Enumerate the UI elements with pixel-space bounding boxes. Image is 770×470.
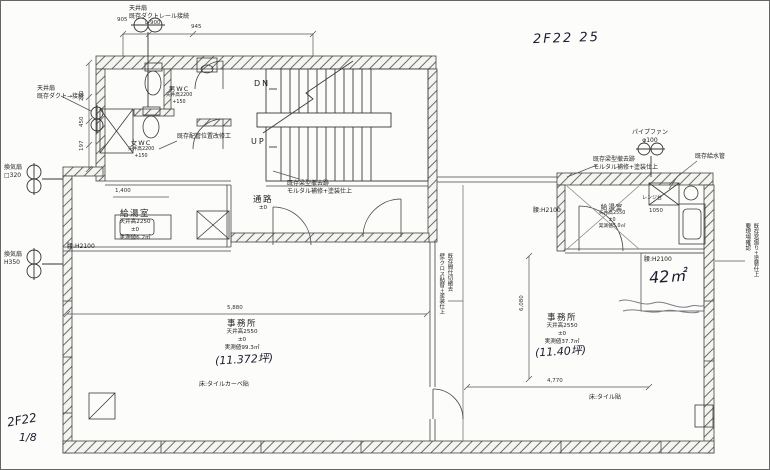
handwritten-office-right-area: (11.40坪) (535, 342, 587, 361)
room-meta: 天井高2200 +150 (151, 93, 207, 106)
handwritten-office-left-area: (11.372坪) (215, 349, 274, 368)
handwritten-sheet-code-top: 2F22 25 (533, 30, 600, 47)
room-name: 女WC (113, 137, 169, 147)
room-name: 給湯室 (583, 201, 641, 211)
annotation-right-side-note: 既存窓廻り+塗装仕上 要現場確認 (743, 223, 760, 353)
annotation-range-stand: レンジ台 (642, 195, 662, 202)
annotation-water-pipe: 既存給水管 (695, 153, 759, 161)
dim-left-1: 280 (79, 91, 85, 102)
room-name: 事務所 (517, 311, 607, 323)
dim-top-2: L-900 (145, 20, 160, 26)
room-label-kitchenette-right: 給湯室 天井高2550 ±0 実測値5.0㎡ (583, 201, 641, 231)
dim-top-3: 945 (191, 24, 202, 30)
floor-plan-sheet: 天井扇 既存ダクトレール接続 天井扇 既存ダクト→接続 換気扇 □320 換気扇… (0, 0, 770, 470)
annotation-waist-wall-left: 腰:H2100 (67, 243, 95, 251)
room-label-womens-wc: 女WC 天井高2200 +150 (113, 137, 169, 160)
dim-range-width: 1050 (649, 208, 663, 214)
stairs-down-label: DN (254, 79, 270, 88)
dim-office-left-width: 5,880 (227, 305, 243, 311)
annotation-pipe-fan: パイプファン φ100 (621, 129, 679, 145)
annotation-beam-removal-1: 既存梁型撤去跡 モルタル補修+塗装仕上 (287, 180, 382, 196)
annotation-partition-removal: 既存間仕切撤去 壁:クロス貼替+塗装仕上 (437, 253, 454, 383)
dim-kitchenette-width: 1,400 (115, 188, 131, 194)
room-name: 事務所 (197, 317, 287, 329)
dim-left-3: 197 (79, 141, 85, 152)
handwritten-total-area: 42㎡ (648, 262, 686, 288)
stairs-up-label: UP (251, 137, 266, 146)
annotation-beam-removal-2: 既存梁型撤去跡 モルタル補修+塗装仕上 (593, 156, 688, 172)
dim-office-right-width: 4,770 (547, 378, 563, 384)
room-name: 男WC (151, 83, 207, 93)
room-label-corridor: 通路 ±0 (241, 193, 285, 213)
annotation-vent-fan-2: 換気扇 H350 (4, 251, 44, 267)
annotation-ceiling-fan-grill: 天井扇 既存ダクト→接続 (37, 85, 99, 101)
room-label-kitchenette-left: 給湯室 天井高2250 ±0 実測値6.2㎡ (104, 207, 166, 242)
room-label-mens-wc: 男WC 天井高2200 +150 (151, 83, 207, 106)
dim-top-1: 905 (117, 17, 128, 23)
annotation-pipe-repair: 既存配管位置改修工 (177, 133, 249, 141)
annotation-ceiling-fan-duct: 天井扇 既存ダクトレール接続 (129, 5, 215, 21)
annotation-vent-fan-1: 換気扇 □320 (4, 164, 44, 180)
room-name: 給湯室 (104, 207, 166, 219)
room-meta: 天井高2550 ±0 実測値5.0㎡ (583, 211, 641, 231)
room-meta: 天井高2250 ±0 実測値6.2㎡ (104, 219, 166, 242)
room-meta: 天井高2200 +150 (113, 147, 169, 160)
room-meta: ±0 (241, 205, 285, 213)
dim-left-2: 450 (79, 117, 85, 128)
room-meta: 天井高2550 ±0 実測値99.3㎡ (197, 329, 287, 352)
handwritten-sheet-scale: 1/8 (19, 431, 37, 444)
annotation-waist-wall-mid: 腰:H2100 (533, 207, 561, 215)
room-label-office-right: 事務所 天井高2550 ±0 実測値37.7㎡ (517, 311, 607, 346)
floor-note-office-left: 床:タイルカーペ貼 (199, 381, 249, 389)
dim-office-right-height: 6,080 (519, 295, 525, 311)
staircase (257, 61, 428, 181)
room-name: 通路 (241, 193, 285, 205)
floor-note-office-right: 床:タイル貼 (589, 394, 621, 402)
room-label-office-left: 事務所 天井高2550 ±0 実測値99.3㎡ (197, 317, 287, 352)
